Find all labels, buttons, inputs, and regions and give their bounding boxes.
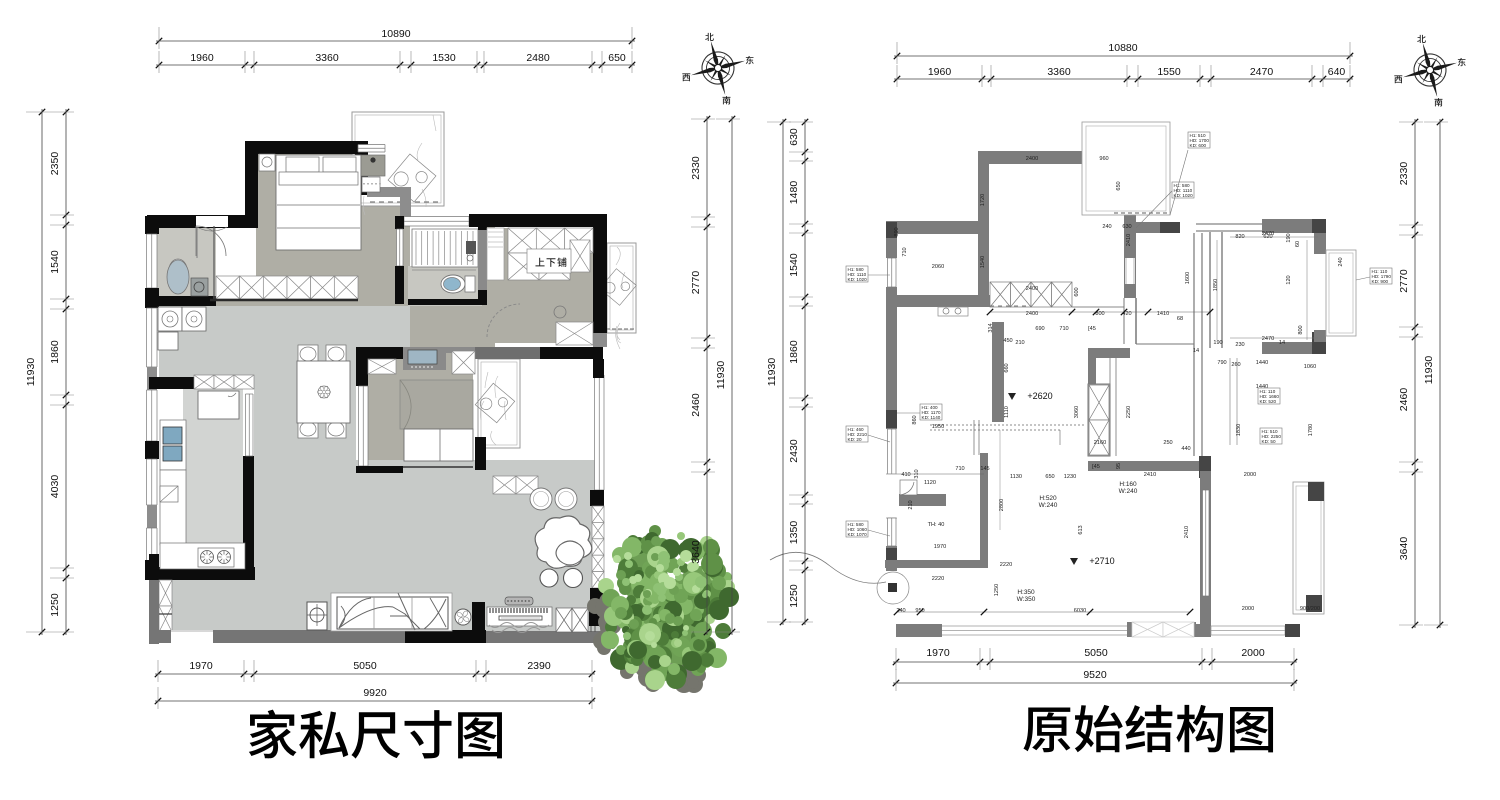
svg-text:TH: 40: TH: 40 <box>928 522 945 528</box>
svg-text:1120: 1120 <box>924 480 936 486</box>
svg-text:5050: 5050 <box>1084 647 1108 659</box>
svg-text:690: 690 <box>1035 326 1044 332</box>
svg-text:2000: 2000 <box>1242 606 1254 612</box>
svg-text:14: 14 <box>1193 348 1199 354</box>
svg-text:3640: 3640 <box>1398 537 1410 561</box>
svg-text:3060: 3060 <box>1074 406 1080 418</box>
svg-text:1830: 1830 <box>1236 424 1242 436</box>
svg-text:210: 210 <box>1015 340 1024 346</box>
svg-text:W:240: W:240 <box>1039 502 1058 509</box>
svg-text:[45: [45 <box>1092 464 1100 470</box>
svg-text:1350: 1350 <box>788 521 800 545</box>
svg-text:1540: 1540 <box>980 256 986 268</box>
svg-text:2400: 2400 <box>1026 286 1038 292</box>
svg-text:1250: 1250 <box>994 584 1000 596</box>
svg-text:2770: 2770 <box>690 271 702 295</box>
svg-text:2000: 2000 <box>1244 472 1256 478</box>
svg-text:660: 660 <box>1004 363 1010 372</box>
svg-text:+2620: +2620 <box>1027 391 1052 401</box>
svg-text:630: 630 <box>1122 224 1131 230</box>
svg-text:11930: 11930 <box>1423 356 1435 385</box>
svg-text:2330: 2330 <box>690 156 702 180</box>
svg-text:W:350: W:350 <box>1017 596 1036 603</box>
svg-text:2470: 2470 <box>1262 336 1274 342</box>
svg-text:2410: 2410 <box>1126 234 1132 246</box>
svg-text:314: 314 <box>988 323 994 332</box>
svg-text:2770: 2770 <box>1398 269 1410 293</box>
svg-text:3360: 3360 <box>1047 66 1071 78</box>
svg-text:650: 650 <box>1045 474 1054 480</box>
svg-text:2250: 2250 <box>1126 406 1132 418</box>
svg-text:3640: 3640 <box>690 540 702 564</box>
svg-text:1970: 1970 <box>934 544 946 550</box>
svg-text:KD: 600: KD: 600 <box>1190 143 1207 148</box>
svg-text:2430: 2430 <box>788 439 800 463</box>
svg-text:95: 95 <box>1116 463 1122 469</box>
svg-text:410: 410 <box>901 472 910 478</box>
svg-text:1060: 1060 <box>1304 364 1316 370</box>
svg-text:11930: 11930 <box>25 358 37 387</box>
svg-text:1230: 1230 <box>1064 474 1076 480</box>
svg-text:1600: 1600 <box>1185 272 1191 284</box>
svg-text:120: 120 <box>1286 275 1292 284</box>
svg-text:11930: 11930 <box>715 361 727 390</box>
svg-text:1860: 1860 <box>788 340 800 364</box>
svg-text:820: 820 <box>1235 234 1244 240</box>
svg-text:4030: 4030 <box>49 475 61 499</box>
svg-text:KD: 1020: KD: 1020 <box>1174 193 1194 198</box>
svg-text:2220: 2220 <box>1000 562 1012 568</box>
svg-text:1950: 1950 <box>932 424 944 430</box>
svg-text:710: 710 <box>955 466 964 472</box>
svg-text:260: 260 <box>1231 362 1240 368</box>
svg-text:2330: 2330 <box>1398 162 1410 186</box>
svg-text:2410: 2410 <box>1184 526 1190 538</box>
svg-text:W:240: W:240 <box>1119 488 1138 495</box>
svg-text:1970: 1970 <box>926 647 950 659</box>
svg-text:2460: 2460 <box>1398 388 1410 412</box>
svg-text:1130: 1130 <box>1010 474 1022 480</box>
svg-text:240: 240 <box>1102 224 1111 230</box>
svg-text:1250: 1250 <box>788 584 800 608</box>
svg-text:1780: 1780 <box>1308 424 1314 436</box>
svg-text:1250: 1250 <box>49 593 61 617</box>
svg-text:710: 710 <box>1059 326 1068 332</box>
svg-text:2470: 2470 <box>1262 231 1274 237</box>
svg-text:1970: 1970 <box>189 660 213 672</box>
svg-text:9520: 9520 <box>1083 669 1107 681</box>
svg-text:68: 68 <box>1177 316 1183 322</box>
svg-text:1960: 1960 <box>190 52 214 64</box>
svg-text:2400: 2400 <box>1026 156 1038 162</box>
svg-text:630: 630 <box>788 128 800 146</box>
svg-text:KD: 1140: KD: 1140 <box>922 415 941 420</box>
svg-text:9920: 9920 <box>363 687 387 699</box>
svg-text:11930: 11930 <box>766 358 778 387</box>
svg-text:2000: 2000 <box>1241 647 1265 659</box>
svg-text:210: 210 <box>908 500 914 509</box>
svg-text:890: 890 <box>894 227 900 236</box>
svg-text:1440: 1440 <box>1256 360 1268 366</box>
svg-text:[45: [45 <box>1088 326 1096 332</box>
svg-text:1530: 1530 <box>432 52 456 64</box>
svg-text:5050: 5050 <box>353 660 377 672</box>
svg-text:14: 14 <box>1279 340 1285 346</box>
svg-text:2470: 2470 <box>1250 66 1274 78</box>
svg-text:H:160: H:160 <box>1119 481 1137 488</box>
svg-text:2800: 2800 <box>999 499 1005 511</box>
svg-text:240: 240 <box>1338 257 1344 266</box>
svg-text:1480: 1480 <box>788 181 800 205</box>
svg-text:1850: 1850 <box>1213 279 1219 291</box>
svg-text:H:520: H:520 <box>1039 495 1057 502</box>
svg-text:450: 450 <box>1003 338 1012 344</box>
svg-text:10880: 10880 <box>1108 42 1137 54</box>
svg-text:190: 190 <box>1286 233 1292 242</box>
svg-text:2160: 2160 <box>1094 440 1106 446</box>
svg-text:1720: 1720 <box>980 194 986 206</box>
svg-text:860: 860 <box>912 415 918 424</box>
svg-text:KD: 1070: KD: 1070 <box>848 532 868 537</box>
svg-text:2060: 2060 <box>932 264 944 270</box>
svg-text:145: 145 <box>980 466 989 472</box>
svg-text:2480: 2480 <box>526 52 550 64</box>
svg-text:710: 710 <box>902 247 908 256</box>
svg-text:440: 440 <box>1181 446 1190 452</box>
svg-text:790: 790 <box>1217 360 1226 366</box>
svg-text:1860: 1860 <box>49 340 61 364</box>
svg-text:230: 230 <box>1235 342 1244 348</box>
svg-text:2410: 2410 <box>1144 472 1156 478</box>
svg-text:640: 640 <box>1328 66 1346 78</box>
svg-text:60: 60 <box>1295 241 1301 247</box>
svg-text:650: 650 <box>1116 181 1122 190</box>
svg-text:1110: 1110 <box>1004 406 1010 418</box>
svg-text:1960: 1960 <box>928 66 952 78</box>
svg-text:+2710: +2710 <box>1089 556 1114 566</box>
svg-text:1540: 1540 <box>49 250 61 274</box>
svg-text:2390: 2390 <box>527 660 551 672</box>
svg-text:2460: 2460 <box>690 393 702 417</box>
svg-text:H:350: H:350 <box>1017 589 1035 596</box>
svg-text:900/200: 900/200 <box>1300 606 1320 612</box>
svg-text:3360: 3360 <box>315 52 339 64</box>
svg-text:KD: 520: KD: 520 <box>1260 399 1277 404</box>
svg-text:960: 960 <box>1099 156 1108 162</box>
svg-text:613: 613 <box>1078 525 1084 534</box>
svg-text:1550: 1550 <box>1157 66 1181 78</box>
svg-text:190: 190 <box>1213 340 1222 346</box>
svg-text:KD: 1020: KD: 1020 <box>848 277 868 282</box>
svg-text:2220: 2220 <box>932 576 944 582</box>
svg-text:1540: 1540 <box>788 253 800 277</box>
svg-text:2350: 2350 <box>49 152 61 176</box>
svg-text:KD: 50: KD: 50 <box>1262 439 1276 444</box>
svg-text:650: 650 <box>608 52 626 64</box>
svg-text:KD: 20: KD: 20 <box>848 437 862 442</box>
svg-text:600: 600 <box>1074 287 1080 296</box>
svg-text:10890: 10890 <box>381 28 410 40</box>
svg-text:800: 800 <box>1298 325 1304 334</box>
svg-text:KD: 900: KD: 900 <box>1372 279 1389 284</box>
svg-text:250: 250 <box>1163 440 1172 446</box>
svg-text:6030: 6030 <box>1074 608 1086 614</box>
